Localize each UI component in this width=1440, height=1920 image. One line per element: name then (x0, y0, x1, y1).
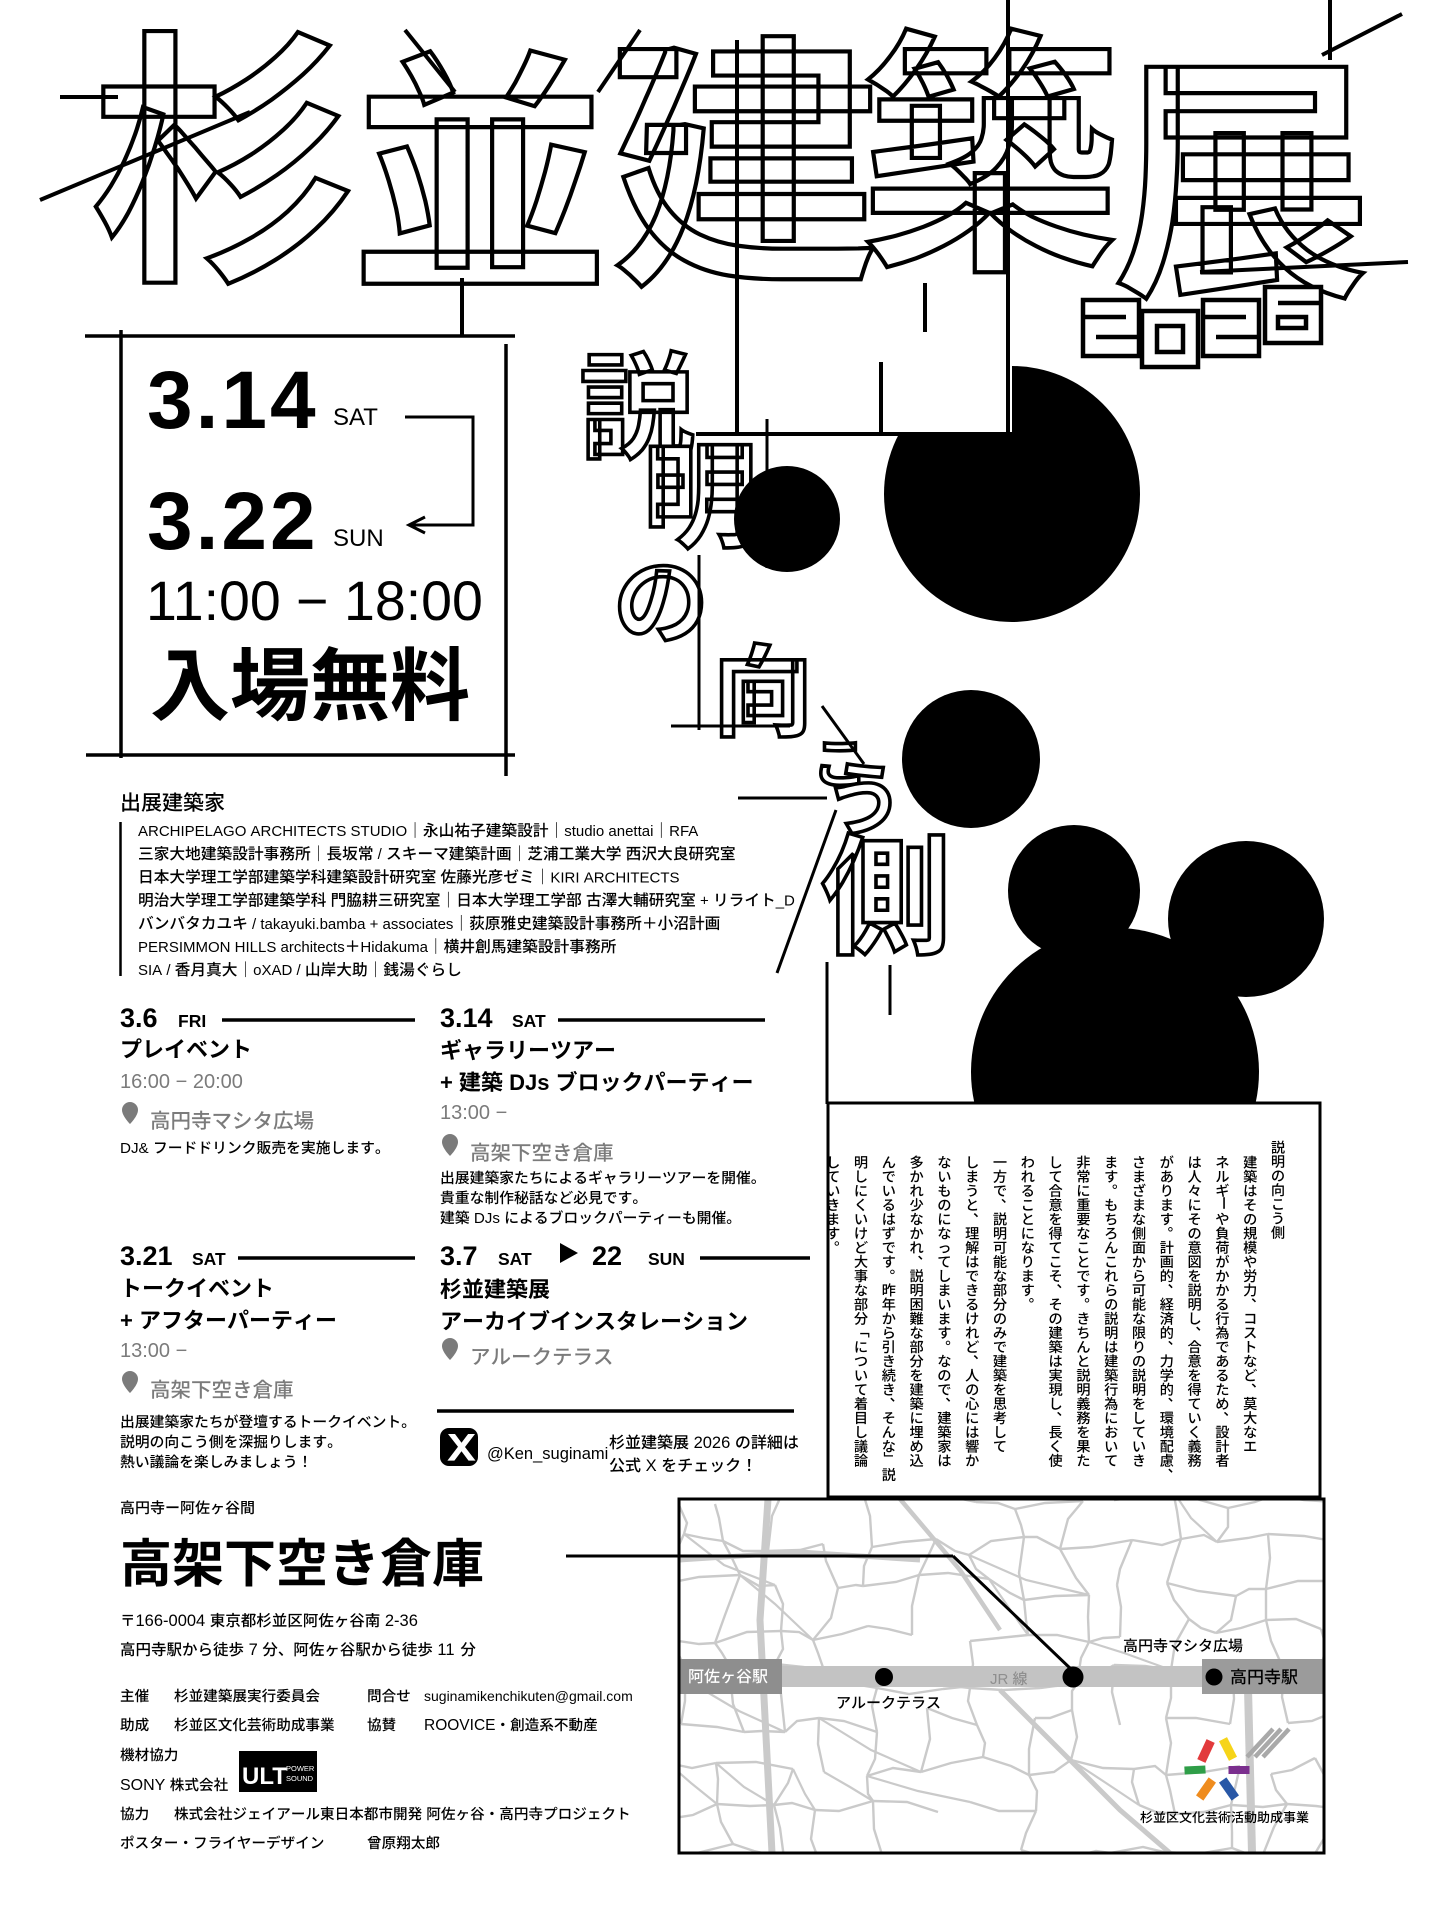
svg-text:11:00 − 18:00: 11:00 − 18:00 (146, 570, 483, 632)
svg-text:suginamikenchikuten@gmail.com: suginamikenchikuten@gmail.com (424, 1688, 633, 1704)
svg-text:22: 22 (592, 1241, 622, 1271)
svg-text:3.6: 3.6 (120, 1003, 158, 1033)
svg-text:X: X (641, 1457, 661, 1475)
svg-text:FRI: FRI (178, 1011, 206, 1031)
svg-text:+: + (696, 893, 713, 910)
svg-text:DJs: DJs (503, 1070, 556, 1095)
svg-text:_D: _D (775, 893, 795, 910)
svg-text:SUN: SUN (648, 1249, 685, 1269)
svg-text:DJ&: DJ& (120, 1140, 153, 1157)
svg-text:16:00 − 20:00: 16:00 − 20:00 (120, 1071, 243, 1093)
svg-text:SAT: SAT (333, 404, 378, 431)
svg-text:SIA /: SIA / (138, 962, 175, 979)
svg-text:POWER: POWER (286, 1764, 315, 1773)
svg-text:JR: JR (990, 1671, 1013, 1688)
svg-text:11: 11 (433, 1641, 459, 1659)
svg-text:+: + (120, 1308, 139, 1333)
svg-text:3.21: 3.21 (120, 1241, 173, 1271)
svg-text:SAT: SAT (512, 1011, 546, 1031)
svg-text:RFA: RFA (669, 823, 698, 840)
svg-text:SOUND: SOUND (286, 1774, 314, 1783)
svg-text:KIRI ARCHITECTS: KIRI ARCHITECTS (550, 869, 679, 886)
svg-text:+: + (440, 1070, 459, 1095)
svg-text:3.7: 3.7 (440, 1241, 478, 1271)
svg-text:SONY: SONY (120, 1777, 170, 1794)
svg-text:SAT: SAT (192, 1249, 226, 1269)
svg-text:13:00 −: 13:00 − (120, 1340, 187, 1362)
svg-text:oXAD /: oXAD / (253, 962, 305, 979)
svg-text:7: 7 (244, 1641, 262, 1659)
svg-text:2-36: 2-36 (380, 1612, 418, 1630)
svg-text:13:00 −: 13:00 − (440, 1102, 507, 1124)
svg-text:Hidakuma: Hidakuma (360, 939, 428, 956)
svg-text:PERSIMMON HILLS architects: PERSIMMON HILLS architects (138, 939, 345, 956)
svg-text:@Ken_suginami: @Ken_suginami (487, 1445, 608, 1463)
svg-text:ULT: ULT (242, 1763, 287, 1790)
svg-text:/: / (374, 846, 387, 863)
svg-text:ROOVICE: ROOVICE (424, 1717, 495, 1734)
svg-text:2026: 2026 (689, 1434, 735, 1452)
svg-text:/ takayuki.bamba + associates: / takayuki.bamba + associates (248, 916, 454, 933)
svg-text:SAT: SAT (498, 1249, 532, 1269)
svg-text:studio anettai: studio anettai (564, 823, 653, 840)
svg-text:SUN: SUN (333, 525, 384, 552)
svg-text:3.14: 3.14 (147, 355, 319, 446)
svg-text:3.22: 3.22 (147, 476, 319, 567)
svg-text:3.14: 3.14 (440, 1003, 493, 1033)
svg-text:ARCHIPELAGO ARCHITECTS STUDIO: ARCHIPELAGO ARCHITECTS STUDIO (138, 823, 407, 840)
svg-text:DJs: DJs (470, 1210, 505, 1227)
svg-text:166-0004: 166-0004 (136, 1612, 210, 1630)
